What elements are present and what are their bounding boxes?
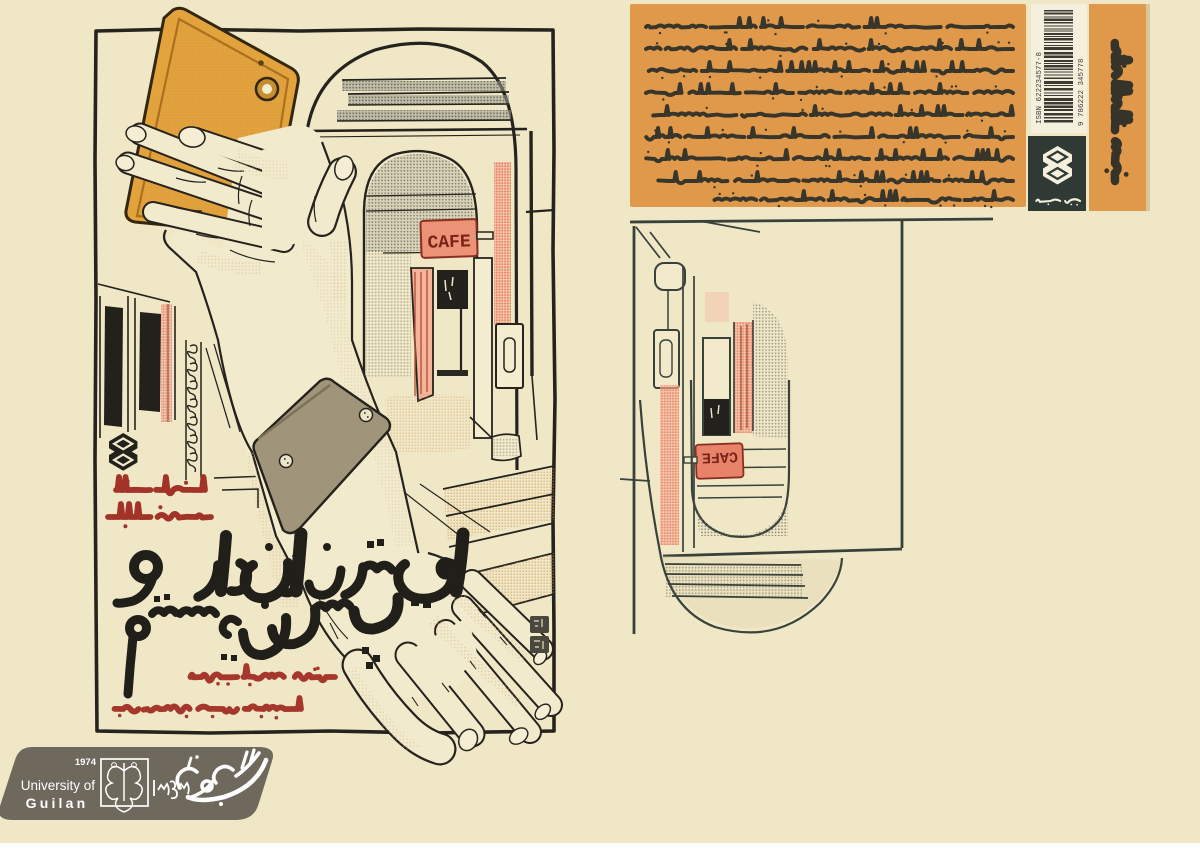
svg-text:University of: University of: [21, 778, 96, 793]
svg-text:1974: 1974: [75, 757, 97, 768]
svg-text:Guilan: Guilan: [26, 795, 89, 811]
svg-text:9 786222 345778: 9 786222 345778: [1078, 58, 1086, 126]
svg-text:ISBN 622234577-8: ISBN 622234577-8: [1036, 52, 1044, 124]
svg-text:CAFE: CAFE: [702, 447, 739, 465]
svg-text:CAFE: CAFE: [427, 232, 471, 254]
